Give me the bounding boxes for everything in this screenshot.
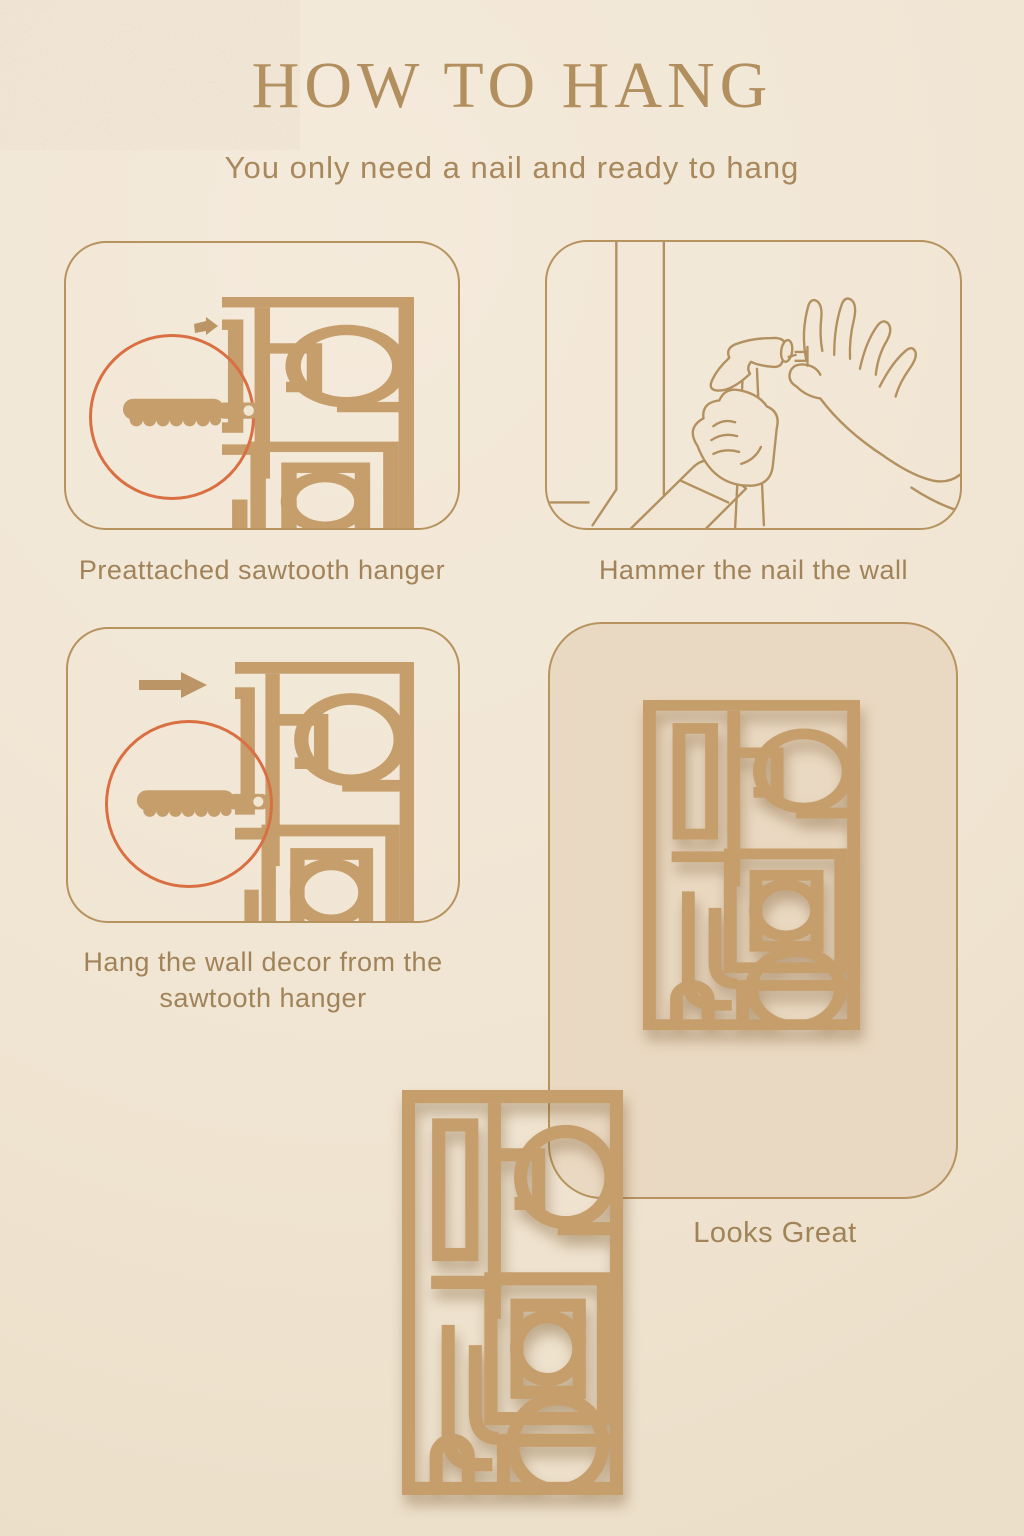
step-2-panel [545, 240, 962, 530]
poster-title: HOW TO HANG [0, 48, 1024, 124]
hand-holding-nail-icon [789, 299, 959, 512]
hammer-nail-illustration [547, 242, 960, 529]
wall-edge-lines [547, 242, 664, 529]
looks-great-caption: Looks Great [575, 1215, 975, 1251]
direction-arrow-icon [139, 670, 209, 700]
step-3-caption: Hang the wall decor from the sawtooth ha… [29, 944, 497, 1016]
poster-subtitle: You only need a nail and ready to hang [0, 150, 1024, 186]
wall-decor-graphic [643, 700, 860, 1030]
wall-decor-graphic-large [402, 1090, 623, 1495]
step-2-caption: Hammer the nail the wall [545, 552, 962, 588]
poster-canvas: HOW TO HANG You only need a nail and rea… [0, 0, 1024, 1536]
step-3-caption-text: Hang the wall decor from the sawtooth ha… [48, 944, 478, 1016]
step-3-panel [66, 627, 460, 923]
sawtooth-hanger-icon [120, 393, 265, 433]
step-1-panel [64, 241, 460, 530]
sawtooth-hanger-icon [135, 784, 273, 824]
step-1-caption: Preattached sawtooth hanger [64, 552, 460, 588]
direction-arrow-icon [194, 317, 218, 335]
